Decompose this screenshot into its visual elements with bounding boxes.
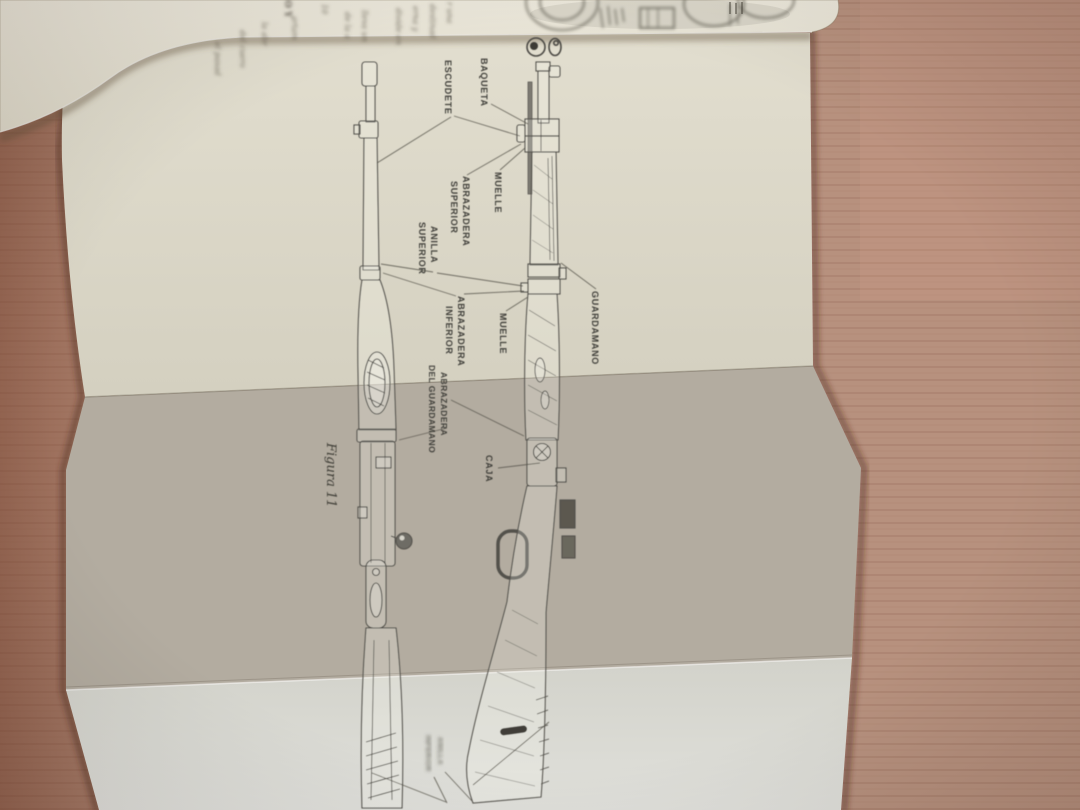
photo-of-open-book: BAQUETA ESCUDETE MUELLE ABRAZADERA SUPER…	[0, 0, 1080, 810]
book-photo-canvas: BAQUETA ESCUDETE MUELLE ABRAZADERA SUPER…	[0, 0, 1080, 810]
photo-vignette	[0, 0, 1080, 810]
